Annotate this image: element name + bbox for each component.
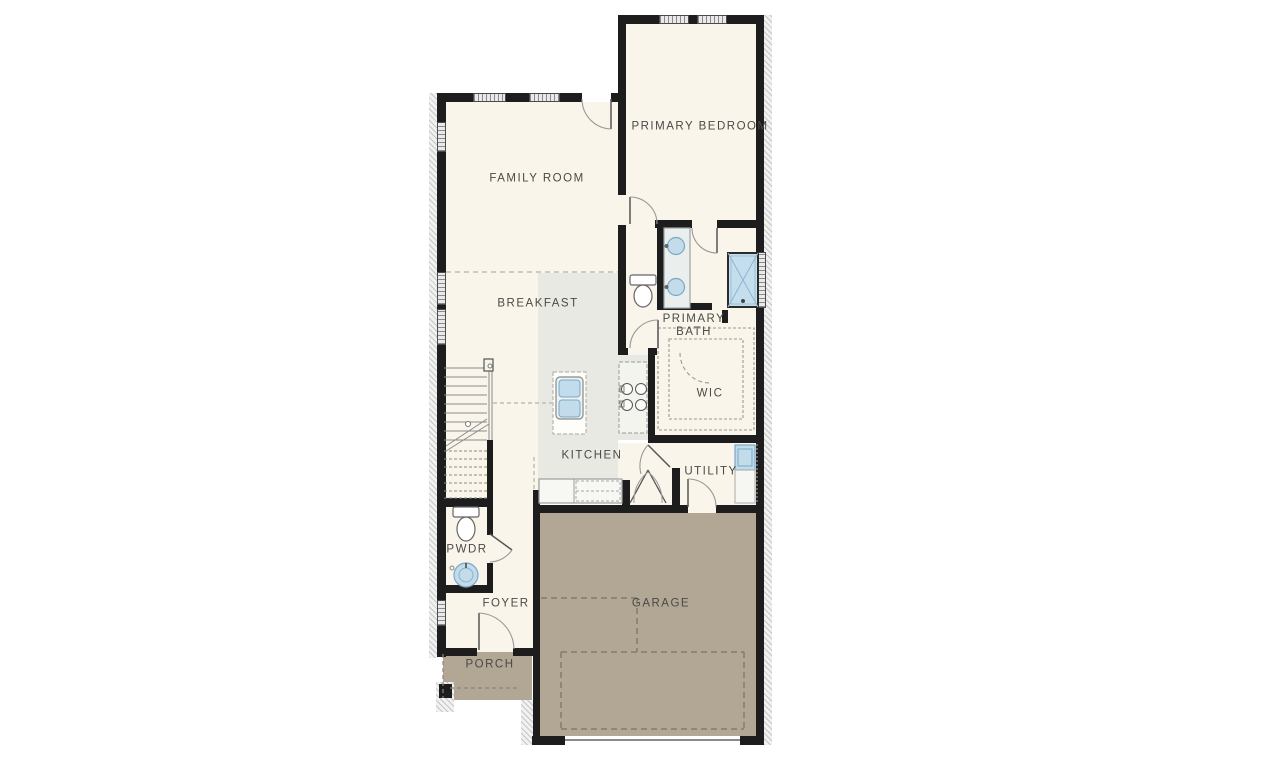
room-label-foyer: FOYER [482, 598, 529, 611]
door-rear-exterior [582, 99, 611, 129]
dryer-outline [735, 470, 755, 503]
kitchen-island [553, 372, 586, 434]
room-label-primary-bath: PRIMARY BATH [659, 313, 729, 339]
fixtures-layer [0, 0, 1280, 770]
room-label-wic: WIC [697, 388, 724, 401]
door-closet-bifold [630, 470, 666, 503]
washer-icon [735, 445, 755, 470]
room-label-primary-bedroom: PRIMARY BEDROOM [631, 121, 768, 134]
room-label-porch: PORCH [465, 659, 514, 672]
wic-shelving-icon [669, 339, 743, 419]
sink-icon [668, 238, 685, 255]
door-front-entry [479, 613, 514, 650]
floor-plan-canvas: FAMILY ROOM PRIMARY BEDROOM BREAKFAST PR… [0, 0, 1280, 770]
room-label-garage: GARAGE [632, 598, 690, 611]
toilet-icon [630, 275, 656, 307]
powder-toilet-icon [453, 507, 479, 541]
sink-icon [668, 279, 685, 296]
door-primary-bedroom [630, 197, 657, 224]
door-utility-entry [640, 445, 670, 474]
door-bath-wc [630, 320, 658, 348]
wic-shelving-icon [658, 328, 754, 430]
door-utility-to-garage [688, 479, 716, 507]
stairs [444, 359, 493, 498]
powder-sink-icon [450, 563, 478, 587]
room-label-breakfast: BREAKFAST [497, 298, 578, 311]
door-pwdr [490, 534, 512, 562]
door-bedroom-to-bath [692, 228, 717, 253]
base-counter [539, 479, 622, 503]
vanity-counter [664, 228, 690, 308]
shower-icon [728, 253, 758, 307]
garage-dashed-lines [541, 598, 744, 729]
door-wic-dashed-swing [680, 353, 710, 383]
room-label-kitchen: KITCHEN [562, 450, 623, 463]
cooktop-icon [619, 362, 647, 433]
room-label-family-room: FAMILY ROOM [489, 173, 584, 186]
room-label-utility: UTILITY [684, 466, 737, 479]
room-label-pwdr: PWDR [446, 544, 487, 557]
